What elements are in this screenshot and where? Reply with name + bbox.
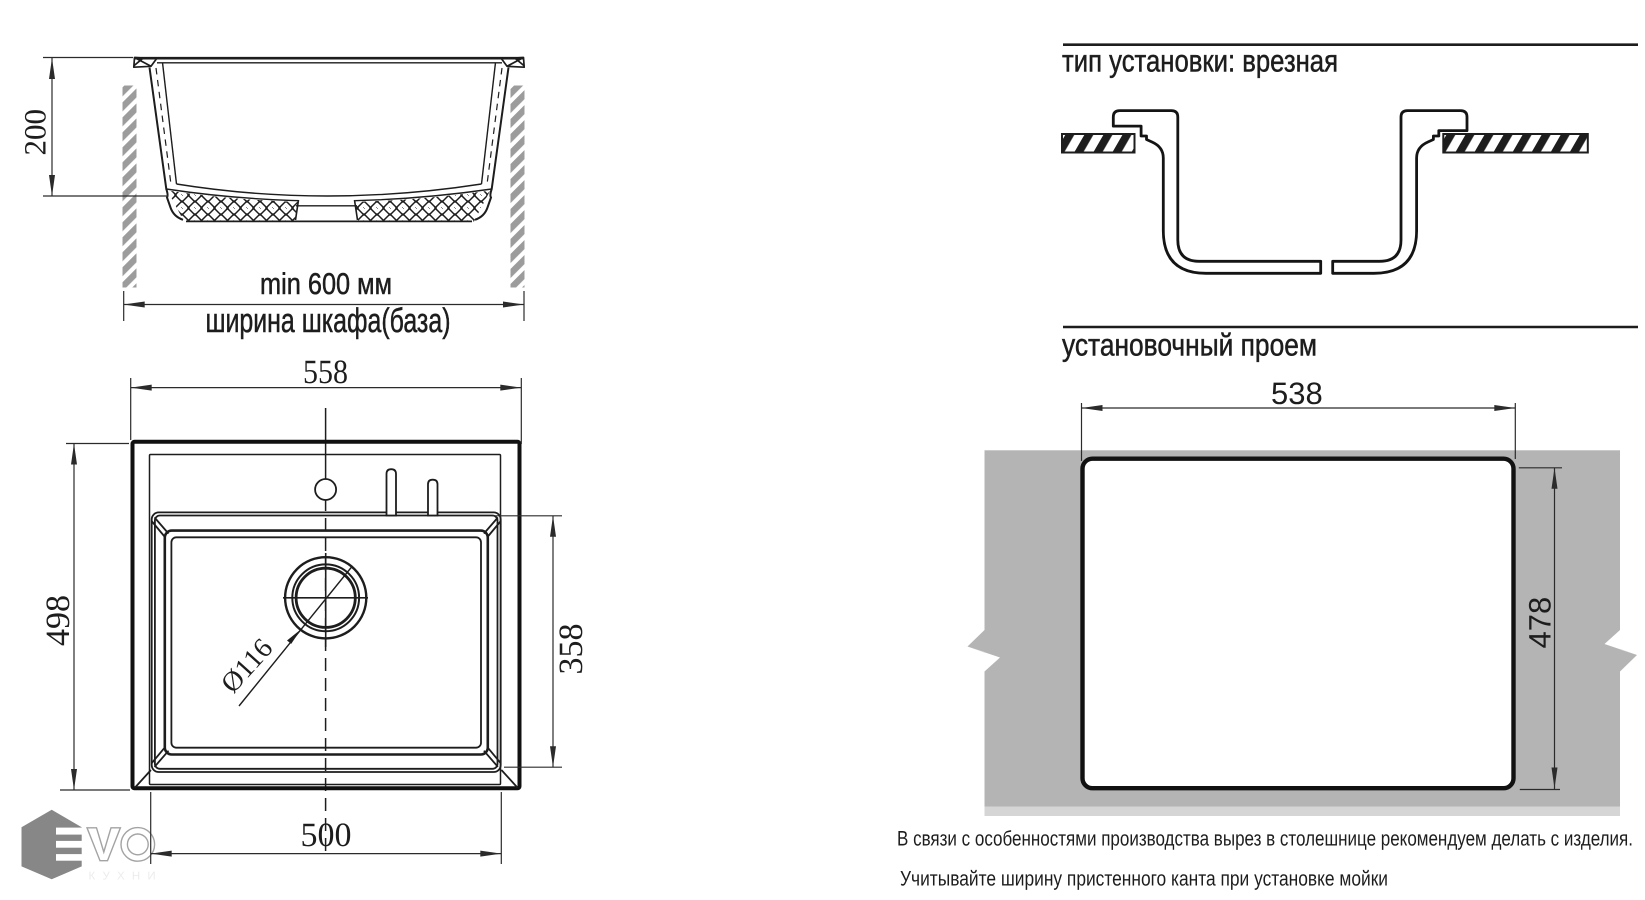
svg-text:тип установки: врезная: тип установки: врезная [1062,44,1338,79]
svg-text:478: 478 [1523,597,1558,649]
svg-text:538: 538 [1271,376,1323,411]
svg-text:КУХНИ: КУХНИ [89,871,163,883]
svg-text:Ø116: Ø116 [215,633,279,699]
svg-text:200: 200 [18,109,53,156]
svg-text:358: 358 [553,624,590,675]
svg-text:установочный проем: установочный проем [1062,328,1317,363]
svg-text:В связи с особенностями произв: В связи с особенностями производства выр… [897,828,1633,851]
svg-text:min 600 мм: min 600 мм [260,268,392,301]
svg-text:ширина шкафа(база): ширина шкафа(база) [206,302,451,340]
svg-text:Учитывайте ширину пристенного: Учитывайте ширину пристенного канта при … [900,868,1388,891]
svg-text:500: 500 [301,817,352,854]
svg-text:498: 498 [40,595,77,646]
svg-text:558: 558 [303,354,348,391]
